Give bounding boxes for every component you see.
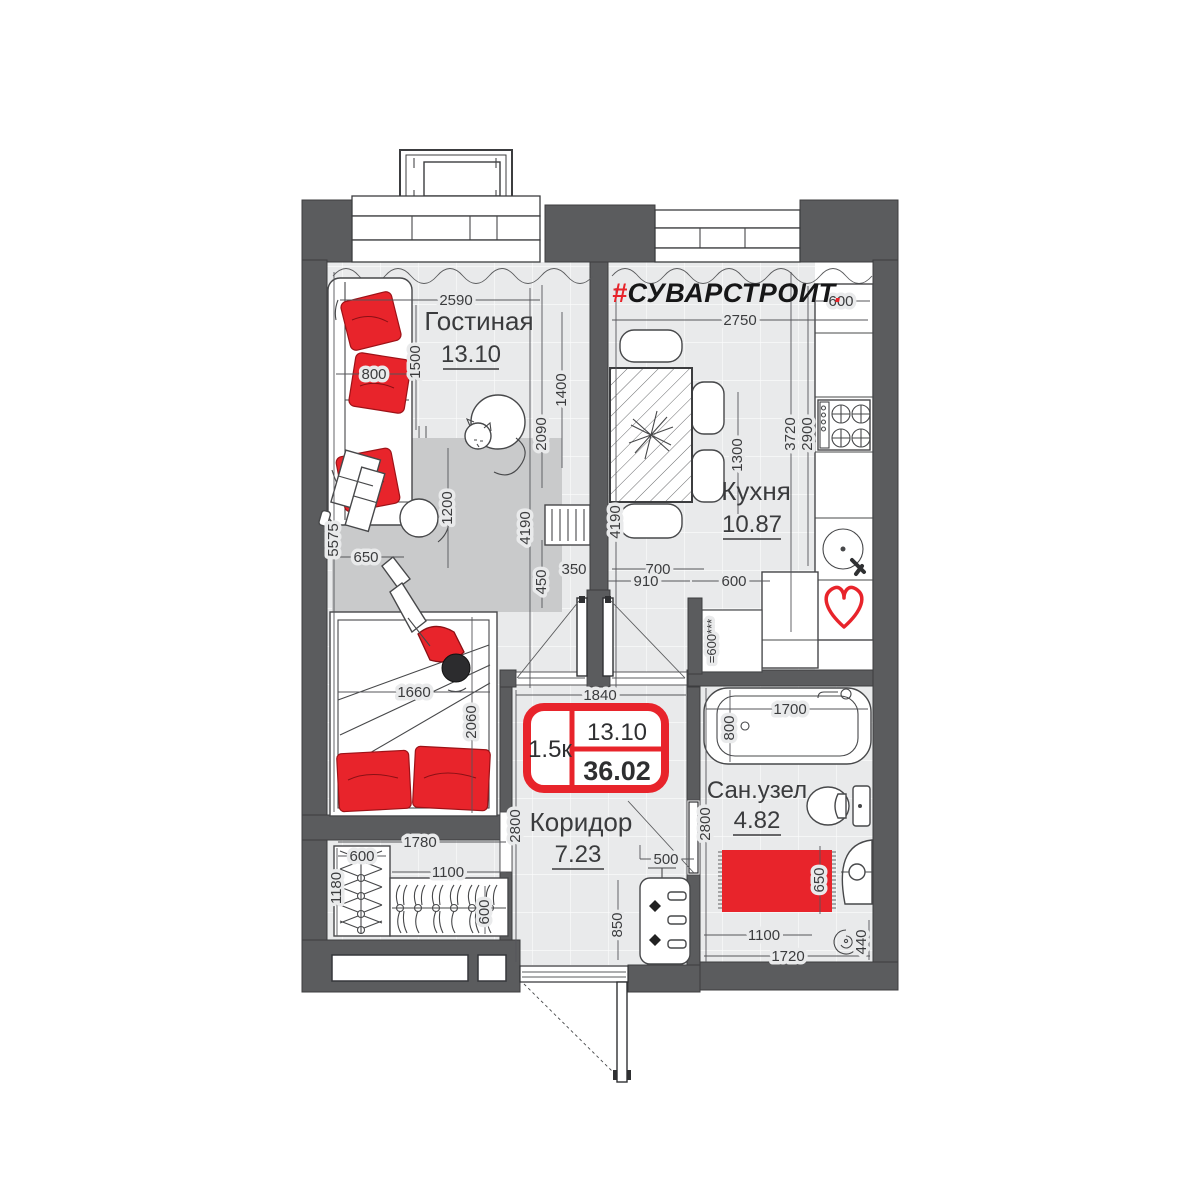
kitchen-counter — [815, 284, 873, 640]
badge-living-area: 13.10 — [587, 719, 647, 746]
wall-bed-wardrobe — [302, 815, 500, 840]
wall-left — [302, 260, 327, 992]
wall-niche-2 — [478, 955, 506, 981]
dim-tv: 1400 — [553, 373, 570, 406]
kitchen-area: 10.87 — [722, 511, 782, 538]
logo-hash: # — [612, 278, 628, 308]
chair-bottom — [620, 504, 682, 538]
dim-side-1180: 1180 — [328, 872, 345, 904]
wall-right — [873, 260, 898, 990]
dim-bed-width: 1660 — [397, 684, 430, 701]
dim-bath-rug: 650 — [811, 867, 828, 892]
window-kitchen — [655, 210, 800, 262]
logo-dot: . — [835, 278, 843, 308]
dim-depth-600: 600 — [476, 899, 493, 924]
wall-corridor-corner-left — [500, 670, 516, 687]
dim-shelf-600: 600 — [349, 848, 374, 865]
wall-niche-1 — [332, 955, 468, 981]
badge-total-area: 36.02 — [583, 756, 651, 786]
corridor-name: Коридор — [530, 807, 633, 837]
dim-tv-wall: 2090 — [533, 417, 550, 450]
toilet — [807, 786, 870, 826]
dim-washer-wall: 1100 — [748, 927, 780, 944]
dim-side-gap: 650 — [353, 549, 378, 566]
badge-room-type: 1.5к — [528, 736, 572, 763]
dim-cabinet-850: 850 — [609, 912, 626, 937]
dim-door-910: 910 — [633, 573, 658, 590]
threshold-kitchen — [610, 672, 687, 685]
dim-gap-350: 350 — [561, 561, 586, 578]
wall-bottom-corridor — [628, 965, 700, 992]
wall-top-middle — [545, 205, 655, 262]
dim-sofa-length: 1500 — [407, 345, 424, 378]
dim-bath-width: 800 — [721, 715, 738, 740]
dim-rod-1780: 1780 — [403, 834, 436, 851]
dim-radiator: 450 — [533, 569, 550, 594]
logo-text: СУВАРСТРОИТ — [628, 278, 838, 308]
window-living — [352, 196, 540, 262]
developer-logo: #СУВАРСТРОИТ. — [612, 278, 843, 308]
hall-cabinet — [640, 868, 690, 964]
wall-top-right — [800, 200, 898, 262]
wall-divider — [590, 262, 608, 602]
door-living-leaf — [577, 598, 587, 676]
dim-side-5575: 5575 — [325, 523, 342, 556]
entrance-threshold — [520, 966, 628, 982]
dim-inner-2900: 2900 — [799, 417, 816, 450]
entrance-door-swing — [524, 984, 613, 1072]
dim-bathroom-depth: 2800 — [697, 807, 714, 840]
wall-top-left-pillar — [302, 200, 354, 262]
dim-hook-500: 500 — [653, 851, 678, 868]
chair-right-1 — [692, 382, 724, 434]
dim-sofa: 800 — [361, 366, 386, 383]
door-kitchen-leaf — [603, 598, 613, 676]
kitchen-name: Кухня — [721, 476, 791, 506]
floorplan-page: 2590 800 1500 2090 1400 4190 450 350 120… — [0, 0, 1200, 1200]
floorplan-drawing: 2590 800 1500 2090 1400 4190 450 350 120… — [0, 0, 1200, 1200]
chair-top — [620, 330, 682, 362]
living-room-name: Гостиная — [424, 306, 533, 336]
corridor-area: 7.23 — [555, 841, 602, 868]
dim-rod-1100: 1100 — [432, 864, 464, 881]
dim-corridor-depth: 2800 — [507, 809, 524, 842]
dim-living-depth: 4190 — [517, 511, 534, 544]
dim-niche-600: 600 — [721, 573, 746, 590]
bathroom-name: Сан.узел — [707, 777, 807, 804]
bathroom-area: 4.82 — [734, 807, 781, 834]
fridge-cabinet — [762, 572, 818, 668]
dim-bathroom-width: 1720 — [771, 948, 804, 965]
dim-bed-length: 2060 — [463, 705, 480, 738]
dim-kitchen-width: 2750 — [723, 312, 756, 329]
dim-rug: 1200 — [439, 491, 456, 524]
dim-kitchen-depth: 4190 — [607, 505, 624, 538]
wall-bottom-bathroom — [700, 962, 898, 990]
dim-closet-600: =600*** — [704, 619, 719, 663]
radiator — [545, 505, 590, 545]
dim-wall-3720: 3720 — [782, 417, 799, 450]
wall-closet — [688, 598, 702, 674]
entrance-door-leaf — [617, 982, 627, 1082]
dim-washer-440: 440 — [853, 929, 870, 954]
dim-table: 1300 — [729, 438, 746, 471]
chair-right-2 — [692, 450, 724, 502]
apartment-badge: 1.5к 13.10 36.02 — [527, 707, 665, 789]
stove — [818, 400, 870, 450]
dim-corridor-width: 1840 — [583, 687, 616, 704]
living-room-area: 13.10 — [441, 341, 501, 368]
dim-bath-length: 1700 — [773, 701, 806, 718]
